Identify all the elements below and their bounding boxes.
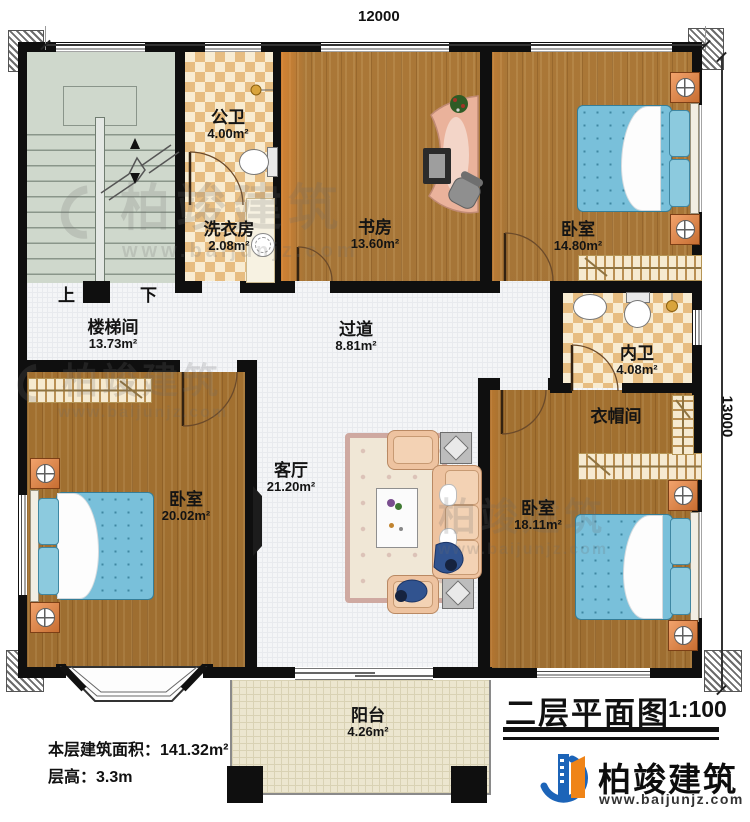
floor-height-label: 层高： xyxy=(48,769,96,786)
bay-window xyxy=(62,666,205,701)
dimension-top-value: 12000 xyxy=(358,8,400,25)
brand-logo-icon xyxy=(534,750,592,810)
plan-scale: 1:100 xyxy=(668,696,727,723)
closet-rails xyxy=(120,258,690,475)
computer-monitor xyxy=(423,148,451,184)
floor-height-info: 层高：3.3m xyxy=(48,763,132,787)
floorplan-canvas: 柏竣建筑 www.baijunjz.com 柏竣建筑 www.baijunjz.… xyxy=(0,0,750,822)
floor-height-value: 3.3m xyxy=(96,769,132,786)
door-public-bath xyxy=(190,152,243,205)
stair-down-label: 下 xyxy=(140,281,157,306)
floor-area-label: 本层建筑面积： xyxy=(48,742,160,759)
floor-area-value: 141.32m² xyxy=(160,742,229,759)
dimension-right-value: 13000 xyxy=(718,396,735,438)
dimension-line-top xyxy=(45,44,706,46)
stair-break-line xyxy=(101,138,179,200)
person-on-sofa xyxy=(434,542,463,573)
tv xyxy=(253,486,262,556)
floor-area-info: 本层建筑面积：141.32m² xyxy=(48,736,229,760)
brand-website: www.baijunjz.com xyxy=(599,791,744,807)
door-bedroom-sw xyxy=(183,372,237,426)
person-on-armchair xyxy=(395,580,427,602)
title-rule xyxy=(503,737,719,740)
door-bedroom-se xyxy=(502,390,546,434)
door-bedroom-ne xyxy=(505,233,553,281)
plant xyxy=(450,95,468,113)
door-inner-bath xyxy=(572,345,618,391)
door-study xyxy=(298,247,332,281)
stair-up-label: 上 xyxy=(58,281,75,306)
title-rule xyxy=(503,727,719,732)
dimension-line-right xyxy=(721,57,723,690)
